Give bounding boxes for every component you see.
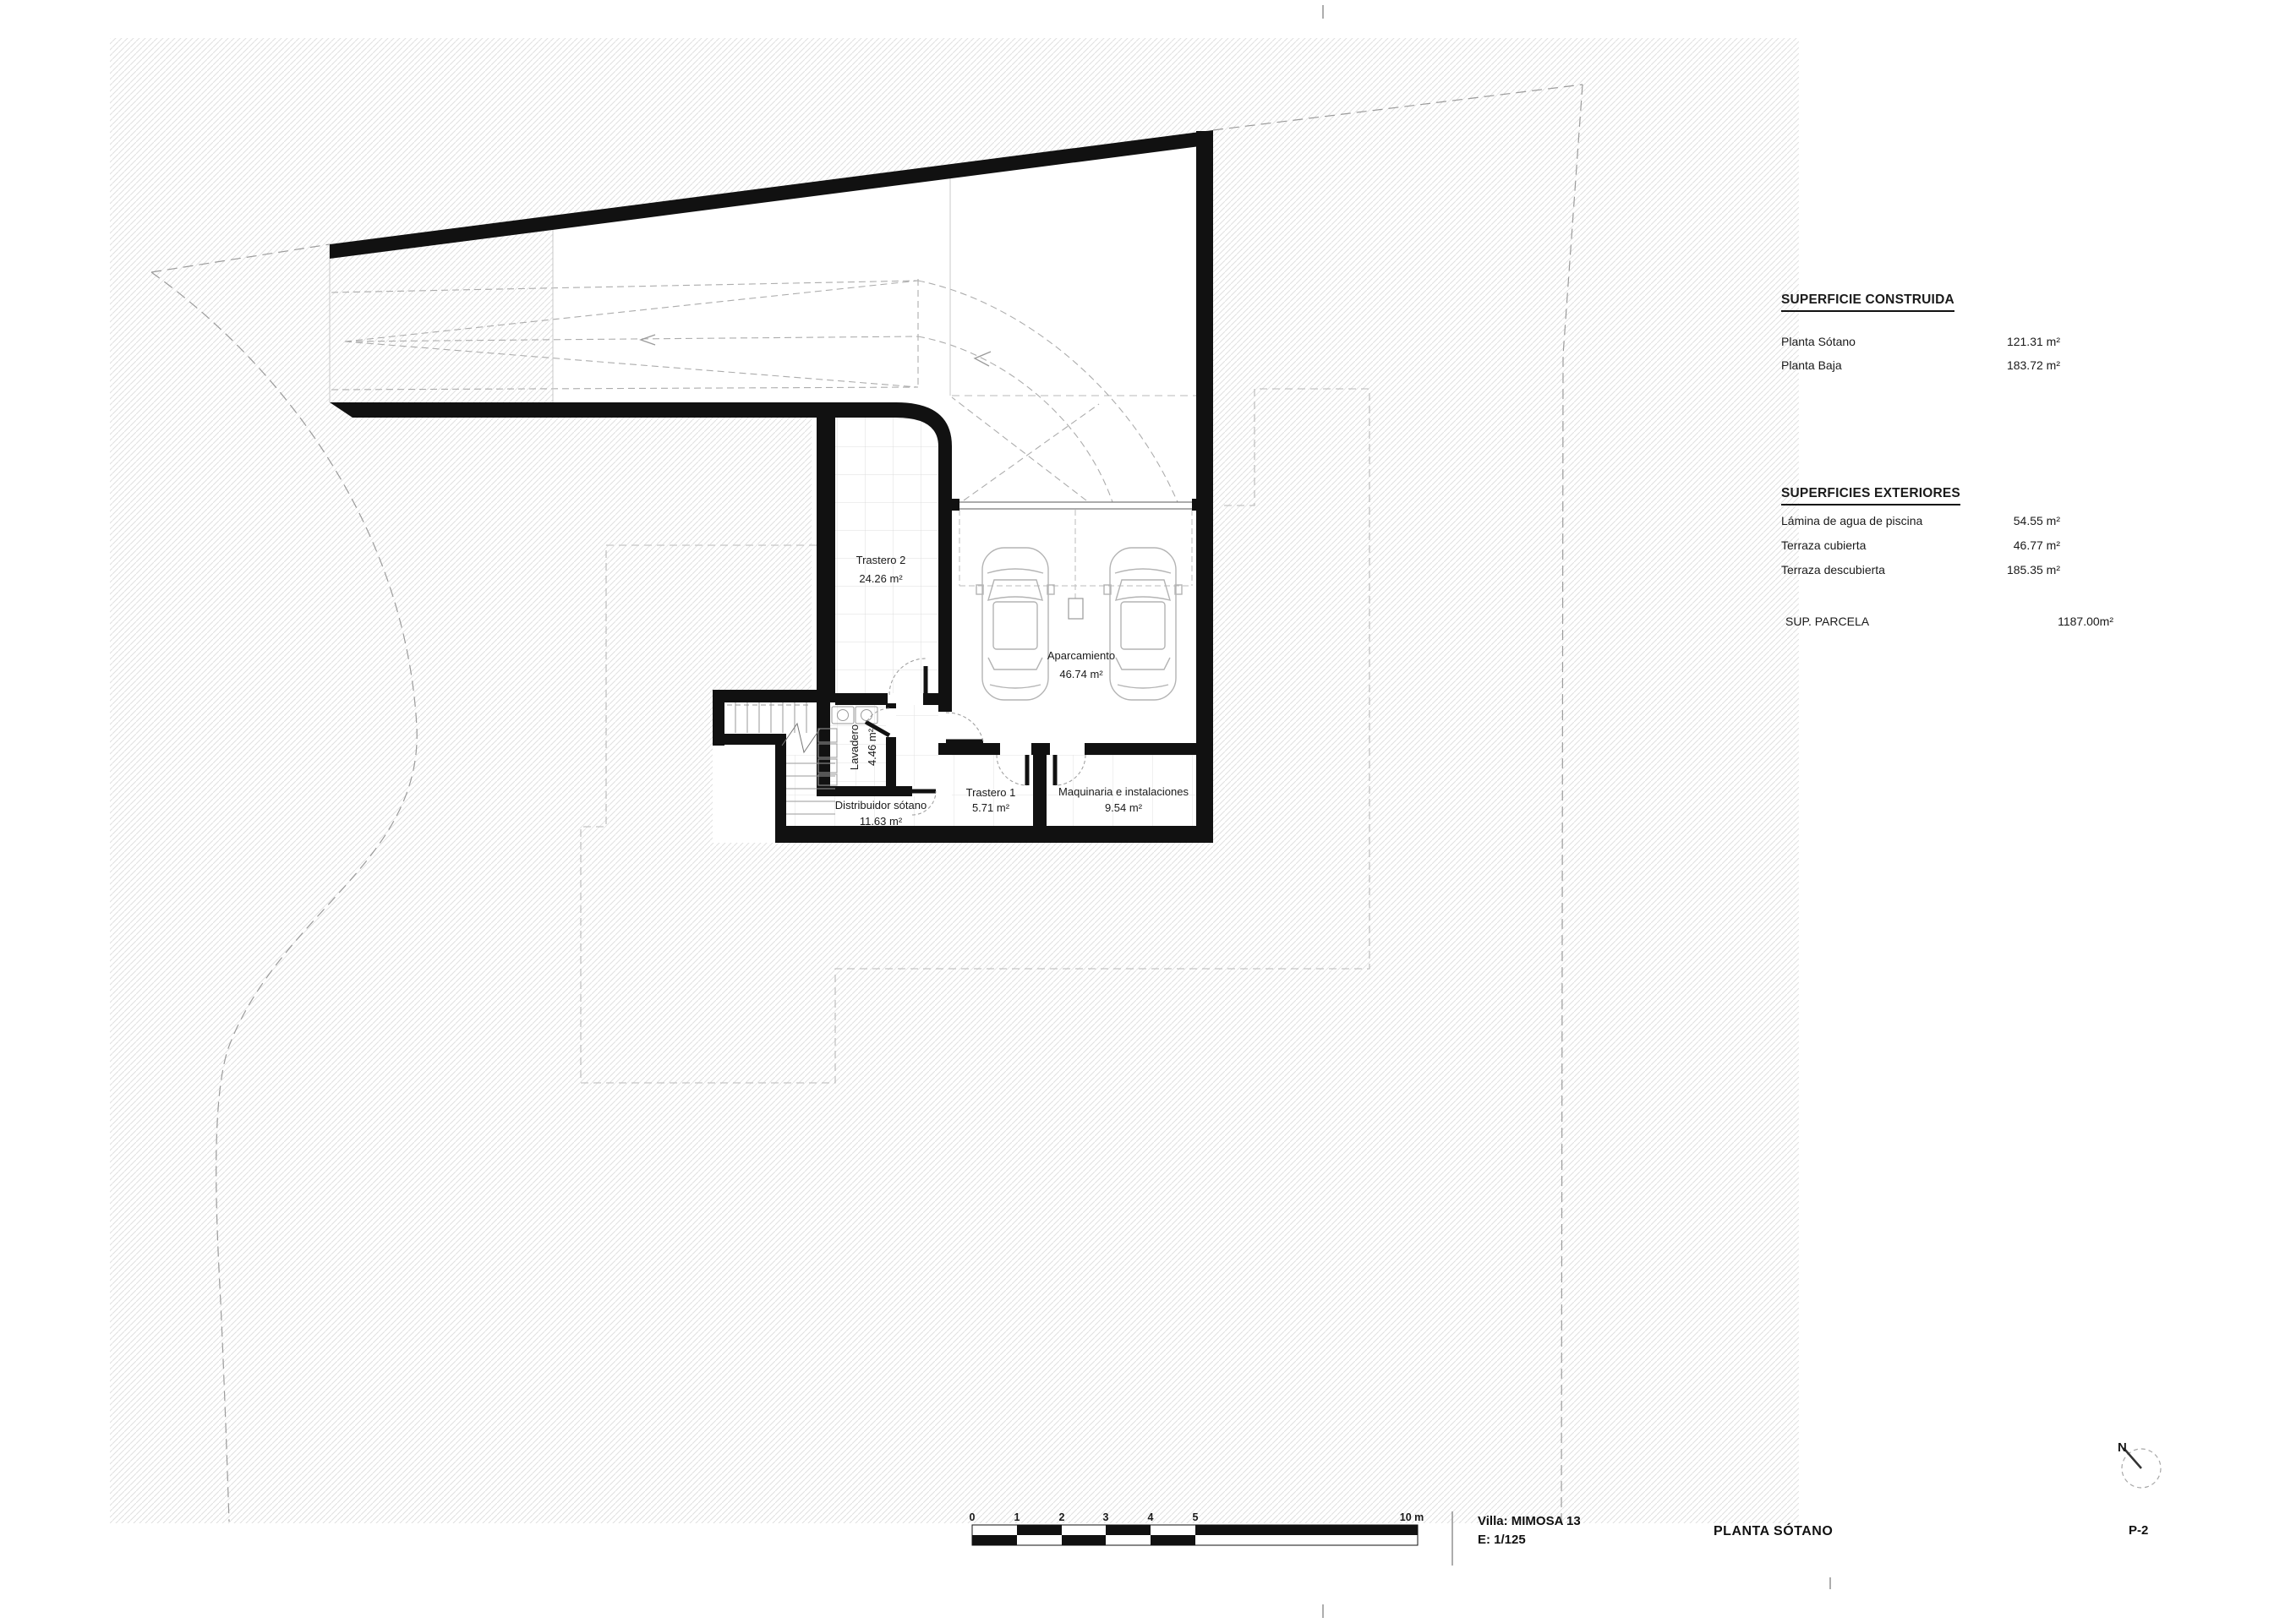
trastero1-name: Trastero 1 bbox=[966, 786, 1016, 799]
distribuidor-area: 11.63 m² bbox=[860, 815, 903, 828]
row-lamina-piscina: Lámina de agua de piscina 54.55 m² bbox=[1781, 514, 2060, 527]
row-value: 46.77 m² bbox=[2014, 538, 2060, 552]
maquinaria-name: Maquinaria e instalaciones bbox=[1058, 785, 1189, 798]
scale-label: E: 1/125 bbox=[1478, 1533, 1526, 1547]
floor-plan-canvas: Trastero 2 24.26 m² Aparcamiento 46.74 m… bbox=[0, 0, 2296, 1623]
construida-heading: SUPERFICIE CONSTRUIDA bbox=[1781, 292, 1954, 312]
row-terraza-cubierta: Terraza cubierta 46.77 m² bbox=[1781, 538, 2060, 552]
garage-door-jamb-left bbox=[944, 499, 959, 511]
scale-0: 0 bbox=[970, 1511, 976, 1523]
scale-4: 4 bbox=[1148, 1511, 1154, 1523]
row-value: 121.31 m² bbox=[2007, 335, 2060, 348]
drawing-sheet: Trastero 2 24.26 m² Aparcamiento 46.74 m… bbox=[0, 0, 2296, 1623]
row-label: SUP. PARCELA bbox=[1785, 615, 1869, 628]
row-label: Terraza descubierta bbox=[1781, 563, 1885, 577]
wall-garage-left-upper bbox=[938, 446, 952, 712]
maquinaria-area: 9.54 m² bbox=[1105, 801, 1143, 814]
wall-rooms-top-3 bbox=[1085, 743, 1196, 755]
trastero2-area: 24.26 m² bbox=[859, 572, 903, 585]
garage-door-jamb-right bbox=[1192, 499, 1206, 511]
scale-bar-segments bbox=[972, 1525, 1418, 1545]
wall-trastero2-door-jamb bbox=[923, 693, 938, 705]
wall-stair-top bbox=[713, 690, 835, 702]
wall-lavadero-right bbox=[886, 737, 896, 788]
scale-10m: 10 m bbox=[1400, 1511, 1424, 1523]
lavadero-area: 4.46 m² bbox=[866, 728, 878, 766]
scale-3: 3 bbox=[1103, 1511, 1109, 1523]
trastero1-area: 5.71 m² bbox=[972, 801, 1010, 814]
row-value: 54.55 m² bbox=[2014, 514, 2060, 527]
row-label: Planta Sótano bbox=[1781, 335, 1856, 348]
distribuidor-name: Distribuidor sótano bbox=[835, 799, 927, 811]
row-terraza-descubierta: Terraza descubierta 185.35 m² bbox=[1781, 563, 2060, 577]
wall-stair-mid bbox=[713, 734, 786, 745]
trastero2-name: Trastero 2 bbox=[856, 554, 906, 566]
exteriores-heading: SUPERFICIES EXTERIORES bbox=[1781, 486, 1960, 505]
aparcamiento-area: 46.74 m² bbox=[1059, 668, 1103, 680]
north-arrow: N bbox=[2118, 1440, 2161, 1488]
wall-trastero1-maquinaria bbox=[1033, 755, 1047, 826]
row-value: 185.35 m² bbox=[2007, 563, 2060, 577]
wall-right bbox=[1196, 131, 1213, 843]
scale-5: 5 bbox=[1193, 1511, 1199, 1523]
sheet-number: P-2 bbox=[2129, 1523, 2148, 1538]
plan-title: PLANTA SÓTANO bbox=[1714, 1524, 1833, 1539]
villa-title: Villa: MIMOSA 13 bbox=[1478, 1514, 1581, 1528]
row-label: Terraza cubierta bbox=[1781, 538, 1866, 552]
scale-2: 2 bbox=[1059, 1511, 1065, 1523]
wall-lavadero-right-jamb bbox=[886, 703, 896, 708]
wall-distribuidor-top bbox=[817, 786, 912, 796]
row-value: 183.72 m² bbox=[2007, 358, 2060, 372]
north-label: N bbox=[2118, 1440, 2127, 1455]
row-value: 1187.00m² bbox=[2058, 615, 2113, 628]
row-label: Planta Baja bbox=[1781, 358, 1842, 372]
wall-rooms-top-1 bbox=[938, 743, 1000, 755]
row-planta-sotano: Planta Sótano 121.31 m² bbox=[1781, 335, 2060, 348]
scale-1: 1 bbox=[1014, 1511, 1020, 1523]
wall-trastero2-bottom bbox=[835, 693, 888, 705]
row-sup-parcela: SUP. PARCELA 1187.00m² bbox=[1785, 615, 2113, 628]
garage-ceiling-hatch bbox=[1069, 598, 1083, 619]
row-label: Lámina de agua de piscina bbox=[1781, 514, 1922, 527]
wall-rooms-top-2 bbox=[1031, 743, 1050, 755]
wall-bottom bbox=[775, 826, 1213, 843]
open-ramp-hatch bbox=[330, 229, 553, 402]
row-planta-baja: Planta Baja 183.72 m² bbox=[1781, 358, 2060, 372]
wall-stair-lower-left bbox=[775, 734, 786, 837]
lavadero-name: Lavadero bbox=[848, 724, 861, 770]
aparcamiento-name: Aparcamiento bbox=[1047, 649, 1115, 662]
wall-trastero2-left bbox=[817, 414, 835, 691]
